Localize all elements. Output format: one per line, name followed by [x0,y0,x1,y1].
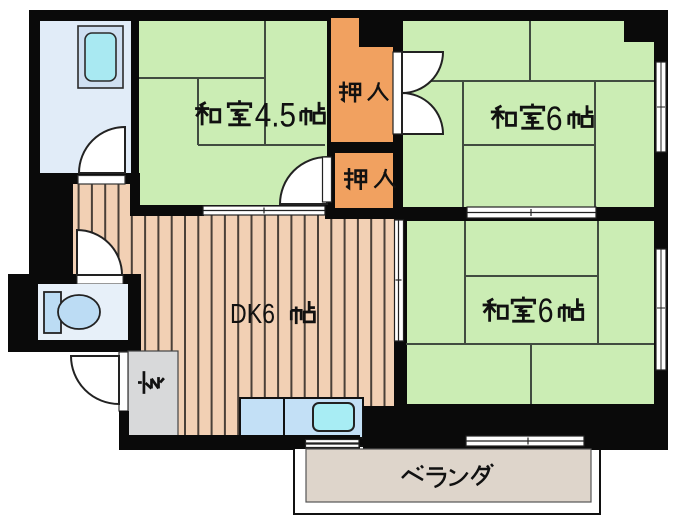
svg-text:6: 6 [538,292,554,330]
svg-text:DK6: DK6 [230,298,275,329]
svg-text:4.5: 4.5 [255,96,296,134]
svg-text:6: 6 [546,100,563,138]
